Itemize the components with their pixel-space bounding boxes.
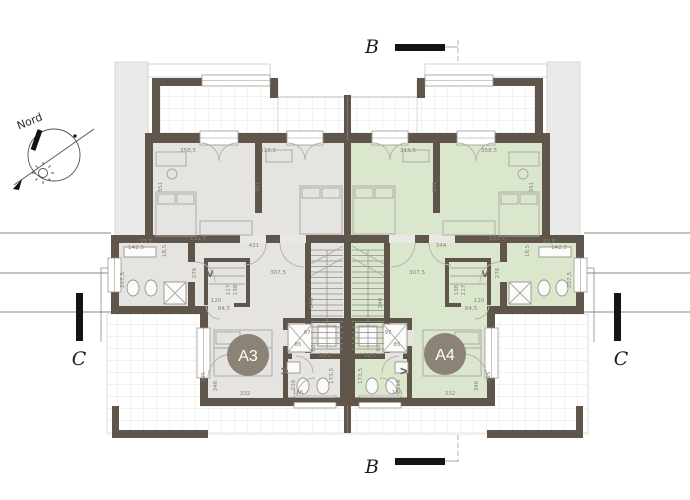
dimension-label: 186	[293, 390, 304, 396]
dimension-label: V	[281, 367, 291, 374]
section-letter-b-bottom: B	[364, 456, 379, 478]
floor-plan-svg: A3 A4 358,5313,5351351131,531,518,542114…	[0, 0, 690, 500]
dimension-label: 60	[311, 344, 317, 352]
dimension-label: 142,5	[128, 245, 144, 251]
dimension-label: V	[482, 270, 489, 280]
dimension-label: 97	[303, 330, 311, 336]
dimension-label: 117	[226, 284, 232, 295]
dimension-label: 295	[486, 371, 492, 382]
dimension-label: 332	[240, 391, 251, 397]
dimension-label: 186	[392, 390, 403, 396]
dimension-label: 85	[294, 342, 302, 348]
section-marker-b-top: B	[364, 36, 445, 58]
dimension-label: V	[207, 270, 214, 280]
section-marker-c-left: C	[72, 293, 87, 370]
dimension-label: 351	[529, 181, 535, 192]
dimension-label: 173,5	[358, 368, 364, 384]
north-label: Nord	[15, 110, 44, 132]
dimension-label: 358,5	[180, 148, 196, 154]
section-letter-c-left: C	[72, 348, 87, 370]
dimension-label: 351	[255, 181, 261, 192]
north-arrow: Nord	[13, 110, 94, 190]
dimension-label: 120	[211, 298, 222, 304]
section-marker-b-bottom: B	[364, 456, 445, 478]
dimension-label: 60	[376, 344, 382, 352]
dimension-label: 59,5	[364, 353, 377, 359]
dimension-label: 351	[158, 181, 164, 192]
dimension-label: 313,5	[400, 148, 416, 154]
dimension-label: 351	[432, 181, 438, 192]
dimension-label: 216	[291, 379, 297, 390]
dimension-label: 142,5	[551, 245, 567, 251]
north-needle	[33, 130, 40, 150]
dimension-label: 131,5	[190, 236, 206, 242]
dimension-label: 97	[384, 330, 392, 336]
dimension-label: 276	[495, 267, 501, 278]
dimension-label: 207,5	[567, 272, 573, 288]
dimension-label: 131,5	[489, 236, 505, 242]
dimension-label: 18,5	[162, 244, 168, 257]
dimension-label: 173,5	[329, 368, 335, 384]
dimension-label: 344	[436, 243, 447, 249]
dimension-label: 138	[233, 284, 239, 295]
dimension-label: 84,5	[465, 306, 478, 312]
section-marker-c-right: C	[614, 293, 629, 370]
dimension-label: 276	[192, 267, 198, 278]
dimension-label: 307,5	[409, 270, 425, 276]
dimension-label: 421	[249, 243, 260, 249]
dimension-label: 138	[454, 284, 460, 295]
dimension-label: V	[400, 367, 410, 374]
unit-a3-label: A3	[238, 348, 258, 365]
dimension-label: 358,5	[481, 148, 497, 154]
dimension-label: 216	[396, 379, 402, 390]
dimension-label: 85	[393, 342, 401, 348]
dimension-label: 313,5	[260, 148, 276, 154]
section-letter-c-right: C	[614, 348, 629, 370]
dimension-label: 246	[309, 297, 315, 308]
dimension-label: 346	[213, 380, 219, 391]
dimension-label: 84,5	[218, 306, 231, 312]
dimension-label: 18,5	[525, 244, 531, 257]
dimension-label: 117	[461, 284, 467, 295]
section-letter-b-top: B	[364, 36, 379, 58]
dimension-label: 307,5	[270, 270, 286, 276]
dimension-label: 246	[378, 297, 384, 308]
dimension-label: 346	[474, 380, 480, 391]
dimension-label: 207,5	[120, 272, 126, 288]
dimension-label: 295	[201, 371, 207, 382]
dimension-label: 332	[445, 391, 456, 397]
dimension-label: 120	[474, 298, 485, 304]
dimension-label: 59,5	[319, 353, 332, 359]
unit-a4-label: A4	[435, 347, 455, 364]
